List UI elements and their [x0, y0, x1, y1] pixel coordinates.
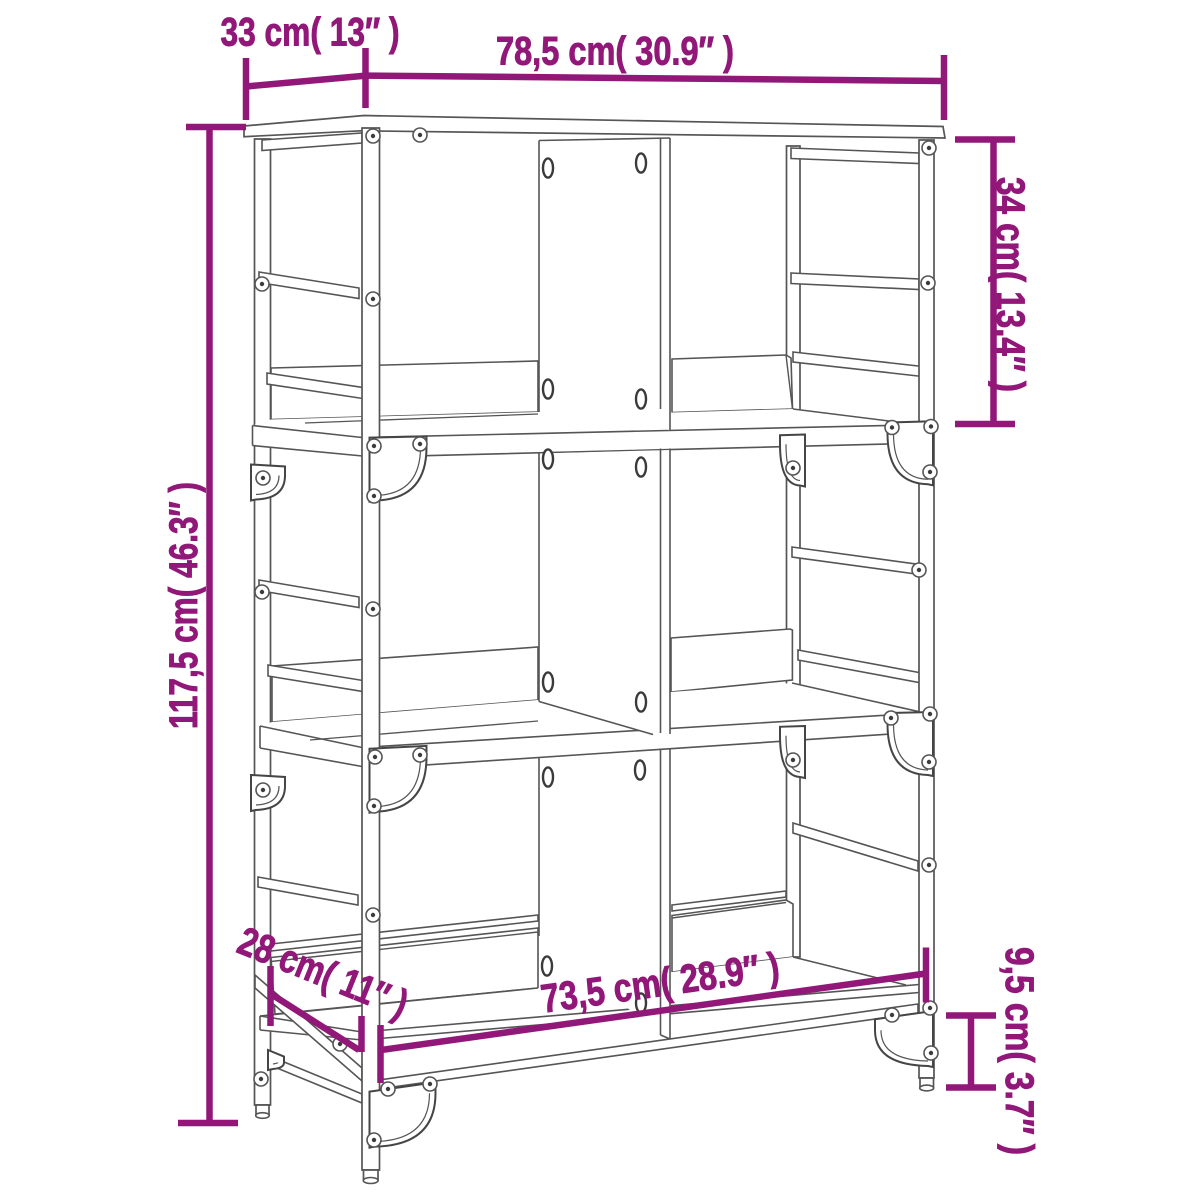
- svg-text:9,5 cm( 3.7″ ): 9,5 cm( 3.7″ ): [997, 947, 1041, 1155]
- svg-text:78,5 cm( 30.9″ ): 78,5 cm( 30.9″ ): [496, 30, 734, 74]
- svg-text:117,5 cm( 46.3″ ): 117,5 cm( 46.3″ ): [162, 482, 206, 729]
- svg-text:33 cm( 13″ ): 33 cm( 13″ ): [221, 11, 400, 55]
- svg-text:34 cm( 13.4″ ): 34 cm( 13.4″ ): [988, 177, 1032, 392]
